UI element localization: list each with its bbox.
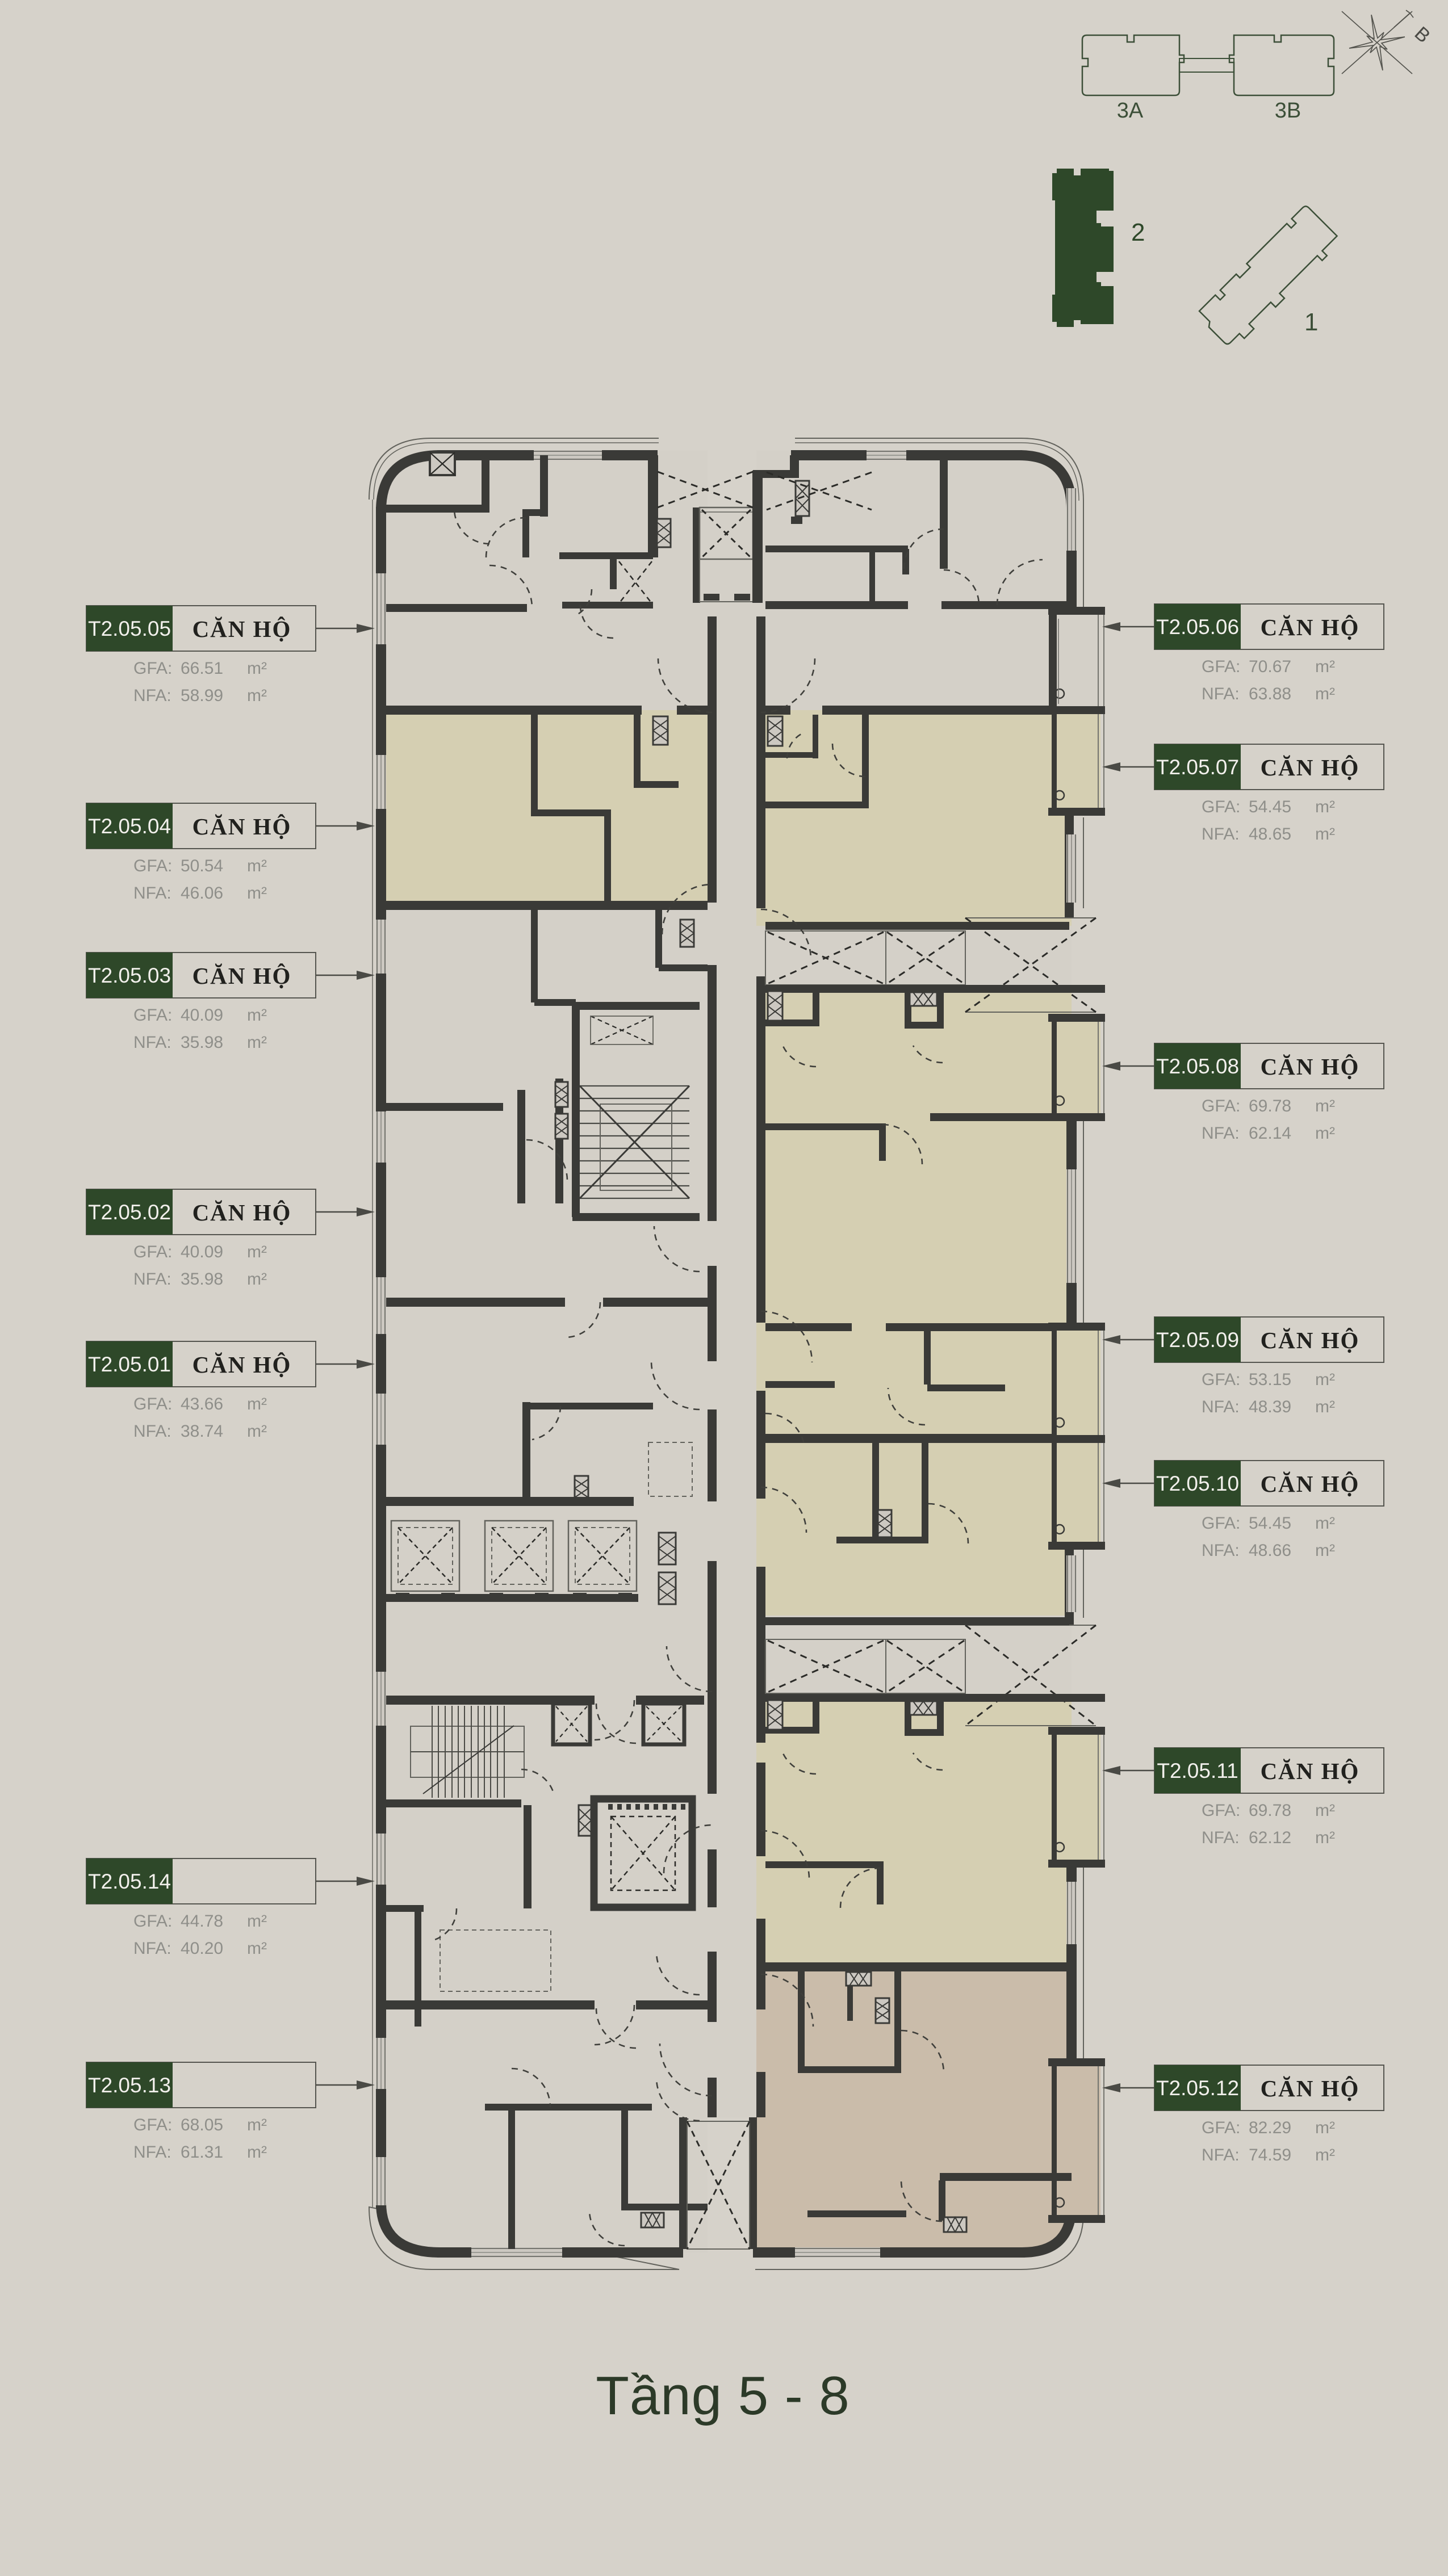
svg-text:T2.05.05: T2.05.05 (88, 617, 171, 640)
svg-text:CĂN HỘ: CĂN HỘ (192, 963, 292, 989)
svg-text:m²: m² (1315, 2118, 1335, 2137)
svg-text:m²: m² (1315, 657, 1335, 676)
svg-text:NFA:: NFA: (133, 2143, 171, 2162)
svg-text:NFA:: NFA: (133, 884, 171, 903)
svg-text:82.29: 82.29 (1249, 2118, 1291, 2137)
svg-text:GFA:: GFA: (133, 1912, 172, 1931)
svg-text:1: 1 (1304, 308, 1318, 336)
svg-text:CĂN HỘ: CĂN HỘ (1261, 1758, 1360, 1784)
svg-text:T2.05.10: T2.05.10 (1156, 1472, 1239, 1495)
svg-text:Tầng 5 - 8: Tầng 5 - 8 (596, 2365, 850, 2426)
svg-text:54.45: 54.45 (1249, 1514, 1291, 1533)
svg-text:NFA:: NFA: (133, 686, 171, 705)
svg-text:62.12: 62.12 (1249, 1828, 1291, 1847)
svg-text:T2.05.11: T2.05.11 (1157, 1759, 1238, 1782)
svg-text:GFA:: GFA: (133, 2116, 172, 2134)
svg-text:m²: m² (1315, 1514, 1335, 1533)
svg-text:35.98: 35.98 (181, 1270, 223, 1289)
svg-text:68.05: 68.05 (181, 2116, 223, 2134)
svg-text:66.51: 66.51 (181, 659, 223, 678)
svg-text:NFA:: NFA: (133, 1422, 171, 1441)
svg-text:69.78: 69.78 (1249, 1801, 1291, 1820)
svg-text:NFA:: NFA: (1202, 1398, 1240, 1416)
svg-text:T2.05.01: T2.05.01 (88, 1353, 171, 1376)
svg-text:CĂN HỘ: CĂN HỘ (1261, 2075, 1360, 2101)
svg-text:GFA:: GFA: (133, 1006, 172, 1025)
svg-text:70.67: 70.67 (1249, 657, 1291, 676)
svg-text:m²: m² (247, 1033, 267, 1052)
svg-text:3B: 3B (1275, 99, 1301, 123)
svg-text:CĂN HỘ: CĂN HỘ (192, 1199, 292, 1226)
svg-text:61.31: 61.31 (181, 2143, 223, 2162)
svg-text:CĂN HỘ: CĂN HỘ (1261, 754, 1360, 781)
svg-text:GFA:: GFA: (1202, 1097, 1240, 1115)
svg-text:3A: 3A (1117, 99, 1144, 123)
svg-text:T2.05.02: T2.05.02 (88, 1201, 171, 1224)
svg-text:GFA:: GFA: (133, 857, 172, 875)
svg-text:53.15: 53.15 (1249, 1370, 1291, 1389)
svg-text:GFA:: GFA: (133, 659, 172, 678)
svg-text:NFA:: NFA: (1202, 685, 1240, 703)
svg-text:44.78: 44.78 (181, 1912, 223, 1931)
svg-text:m²: m² (1315, 1370, 1335, 1389)
svg-text:43.66: 43.66 (181, 1395, 223, 1413)
svg-text:GFA:: GFA: (1202, 657, 1240, 676)
svg-text:T2.05.09: T2.05.09 (1156, 1328, 1239, 1352)
svg-text:40.09: 40.09 (181, 1006, 223, 1025)
svg-text:54.45: 54.45 (1249, 798, 1291, 816)
svg-text:69.78: 69.78 (1249, 1097, 1291, 1115)
svg-text:NFA:: NFA: (133, 1270, 171, 1289)
svg-text:GFA:: GFA: (1202, 1370, 1240, 1389)
svg-text:GFA:: GFA: (1202, 1514, 1240, 1533)
svg-text:m²: m² (1315, 1398, 1335, 1416)
svg-text:m²: m² (1315, 2146, 1335, 2164)
svg-text:T2.05.13: T2.05.13 (88, 2074, 171, 2097)
svg-text:GFA:: GFA: (133, 1243, 172, 1261)
svg-text:m²: m² (247, 686, 267, 705)
svg-text:NFA:: NFA: (1202, 1828, 1240, 1847)
svg-text:T2.05.12: T2.05.12 (1156, 2076, 1239, 2100)
svg-text:m²: m² (1315, 1097, 1335, 1115)
svg-text:m²: m² (1315, 1801, 1335, 1820)
svg-text:m²: m² (1315, 825, 1335, 844)
svg-text:NFA:: NFA: (133, 1939, 171, 1958)
svg-text:m²: m² (247, 884, 267, 903)
svg-text:48.39: 48.39 (1249, 1398, 1291, 1416)
svg-text:63.88: 63.88 (1249, 685, 1291, 703)
svg-text:m²: m² (247, 857, 267, 875)
svg-text:NFA:: NFA: (1202, 1124, 1240, 1143)
svg-text:35.98: 35.98 (181, 1033, 223, 1052)
svg-text:58.99: 58.99 (181, 686, 223, 705)
svg-text:GFA:: GFA: (1202, 1801, 1240, 1820)
svg-text:40.09: 40.09 (181, 1243, 223, 1261)
svg-text:T2.05.04: T2.05.04 (88, 815, 171, 838)
svg-text:40.20: 40.20 (181, 1939, 223, 1958)
svg-text:62.14: 62.14 (1249, 1124, 1291, 1143)
svg-text:T2.05.08: T2.05.08 (1156, 1055, 1239, 1078)
svg-text:NFA:: NFA: (133, 1033, 171, 1052)
svg-text:CĂN HỘ: CĂN HỘ (192, 813, 292, 840)
svg-text:m²: m² (247, 2143, 267, 2162)
svg-text:m²: m² (247, 659, 267, 678)
svg-text:38.74: 38.74 (181, 1422, 223, 1441)
svg-text:m²: m² (1315, 1124, 1335, 1143)
svg-text:m²: m² (247, 2116, 267, 2134)
svg-text:m²: m² (1315, 685, 1335, 703)
svg-text:T2.05.03: T2.05.03 (88, 964, 171, 987)
svg-text:46.06: 46.06 (181, 884, 223, 903)
svg-text:T2.05.06: T2.05.06 (1156, 615, 1239, 639)
svg-text:NFA:: NFA: (1202, 1541, 1240, 1560)
svg-text:m²: m² (1315, 1541, 1335, 1560)
svg-text:T2.05.14: T2.05.14 (88, 1870, 171, 1893)
svg-text:CĂN HỘ: CĂN HỘ (1261, 614, 1360, 640)
svg-text:GFA:: GFA: (1202, 2118, 1240, 2137)
svg-text:m²: m² (247, 1912, 267, 1931)
svg-text:CĂN HỘ: CĂN HỘ (192, 1352, 292, 1378)
svg-text:GFA:: GFA: (1202, 798, 1240, 816)
svg-text:m²: m² (247, 1422, 267, 1441)
svg-text:m²: m² (247, 1006, 267, 1025)
svg-text:CĂN HỘ: CĂN HỘ (1261, 1471, 1360, 1497)
svg-text:50.54: 50.54 (181, 857, 223, 875)
svg-text:m²: m² (247, 1395, 267, 1413)
svg-text:CĂN HỘ: CĂN HỘ (192, 616, 292, 642)
svg-text:NFA:: NFA: (1202, 825, 1240, 844)
svg-text:74.59: 74.59 (1249, 2146, 1291, 2164)
svg-text:T2.05.07: T2.05.07 (1156, 756, 1239, 779)
svg-text:2: 2 (1131, 219, 1145, 246)
svg-text:m²: m² (1315, 798, 1335, 816)
svg-text:m²: m² (247, 1939, 267, 1958)
svg-text:CĂN HỘ: CĂN HỘ (1261, 1327, 1360, 1353)
svg-text:48.66: 48.66 (1249, 1541, 1291, 1560)
svg-text:NFA:: NFA: (1202, 2146, 1240, 2164)
svg-text:m²: m² (247, 1270, 267, 1289)
svg-text:m²: m² (1315, 1828, 1335, 1847)
svg-text:CĂN HỘ: CĂN HỘ (1261, 1054, 1360, 1080)
svg-text:m²: m² (247, 1243, 267, 1261)
svg-text:48.65: 48.65 (1249, 825, 1291, 844)
svg-text:GFA:: GFA: (133, 1395, 172, 1413)
